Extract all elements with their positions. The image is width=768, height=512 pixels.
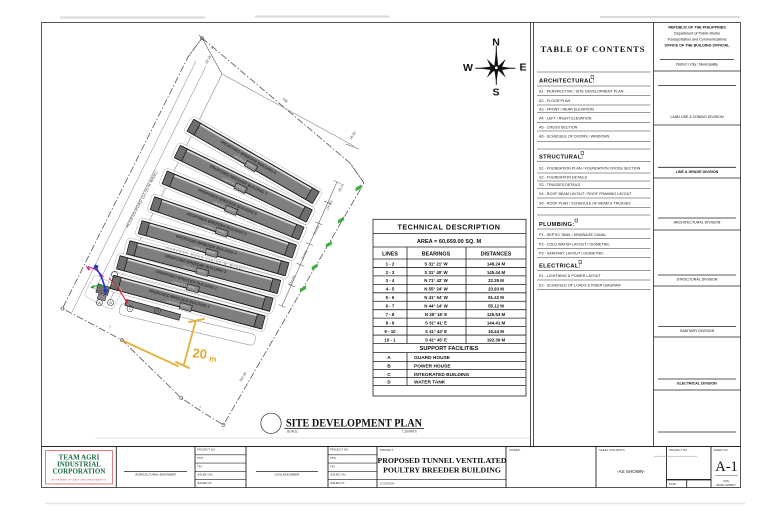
svg-text:TIN:: TIN:: [197, 464, 203, 468]
svg-text:S3 - TRUSSES DETAILS: S3 - TRUSSES DETAILS: [539, 183, 581, 187]
svg-text:TECHNICAL DESCRIPTION: TECHNICAL DESCRIPTION: [397, 223, 500, 232]
svg-text:ISSUED AT:: ISSUED AT:: [197, 481, 212, 485]
svg-text:N 44° 14' W: N 44° 14' W: [424, 304, 448, 309]
svg-text:E2 - SCHEDULE OF LOADS & RISER: E2 - SCHEDULE OF LOADS & RISER DIAGRAM: [539, 284, 621, 288]
svg-text:C: C: [387, 372, 391, 378]
svg-text:N 41° 54' W: N 41° 54' W: [424, 295, 448, 300]
svg-text:SITE DEVELOPMENT PLAN: SITE DEVELOPMENT PLAN: [286, 416, 422, 430]
svg-text:3 - 4: 3 - 4: [386, 278, 395, 283]
svg-text:E: E: [519, 62, 526, 74]
svg-text:CIVIL ENGINEER: CIVIL ENGINEER: [275, 473, 300, 477]
svg-text:SITE: SITE: [723, 479, 729, 483]
svg-text:B: B: [387, 364, 391, 370]
svg-text:A6 - SCHEDULE OF DOORS / WINDO: A6 - SCHEDULE OF DOORS / WINDOWS: [539, 135, 610, 139]
svg-text:55.12 M: 55.12 M: [488, 304, 504, 309]
svg-text:LOCATION:: LOCATION:: [380, 482, 395, 486]
svg-text:148.24 M: 148.24 M: [487, 261, 506, 266]
svg-text:2 - 3: 2 - 3: [386, 270, 395, 275]
svg-text:STRUCTURAL:: STRUCTURAL:: [539, 155, 584, 161]
svg-text:8 - 9: 8 - 9: [386, 320, 395, 325]
svg-text:LINE & GRADE DIVISION: LINE & GRADE DIVISION: [676, 170, 719, 174]
svg-text:A5 - CROSS SECTION: A5 - CROSS SECTION: [539, 126, 578, 130]
svg-text:LAND USE & ZONING DIVISION: LAND USE & ZONING DIVISION: [670, 115, 724, 119]
svg-text:192.39 M: 192.39 M: [487, 337, 506, 342]
svg-text:20: 20: [192, 345, 208, 362]
svg-text:m: m: [209, 354, 217, 364]
svg-text:7 - 8: 7 - 8: [386, 312, 395, 317]
svg-text:6 - 7: 6 - 7: [386, 304, 395, 309]
svg-text:W: W: [463, 62, 473, 74]
svg-text:PROPOSED TUNNEL VENTILATED: PROPOSED TUNNEL VENTILATED: [377, 456, 506, 465]
svg-text:S 31° 21' W: S 31° 21' W: [424, 261, 448, 266]
svg-text:Department of Public Works: Department of Public Works: [674, 32, 720, 36]
svg-text:9 - 10: 9 - 10: [384, 329, 396, 334]
svg-text:E1 - LIGHTNING & POWER LAYOUT: E1 - LIGHTNING & POWER LAYOUT: [539, 274, 602, 278]
svg-text:125.53 M: 125.53 M: [487, 312, 506, 317]
svg-text:LINES: LINES: [382, 252, 398, 258]
svg-text:POULTRY BREEDER BUILDING: POULTRY BREEDER BUILDING: [383, 466, 501, 475]
svg-text:AGRICULTURAL ENGINEER: AGRICULTURAL ENGINEER: [135, 473, 176, 477]
svg-text:S5 - ROOF PLAN / SCHEDULE OF B: S5 - ROOF PLAN / SCHEDULE OF BEAM & TRUS…: [539, 202, 631, 206]
svg-text:DISTANCES: DISTANCES: [481, 252, 512, 258]
svg-text:91.42 M: 91.42 M: [488, 295, 504, 300]
svg-text:PROJECT NO.:: PROJECT NO.:: [669, 448, 689, 452]
svg-text:S4 - ROOF BEAM LAYOUT / ROOF F: S4 - ROOF BEAM LAYOUT / ROOF FRAMING LAY…: [539, 192, 632, 196]
svg-text:District / City / Municipality: District / City / Municipality: [676, 63, 718, 67]
svg-text:ISSUED AT:: ISSUED AT:: [330, 481, 345, 485]
svg-text:AREA = 60,659.00 SQ. M: AREA = 60,659.00 SQ. M: [417, 239, 482, 245]
svg-text:SHEET NO.: SHEET NO.: [714, 448, 729, 452]
svg-text:PROJECT:: PROJECT:: [380, 448, 394, 452]
svg-text:10 - 1: 10 - 1: [384, 337, 396, 342]
svg-text:N 26° 16' E: N 26° 16' E: [425, 312, 447, 317]
svg-text:N: N: [492, 37, 500, 49]
svg-text:S1 - FOUNDATION PLAN / FOUNDAT: S1 - FOUNDATION PLAN / FOUNDATION CROSS …: [539, 167, 641, 171]
svg-text:OWNER:: OWNER:: [509, 448, 521, 452]
svg-text:SUPPORT FACILITIES: SUPPORT FACILITIES: [420, 346, 479, 352]
svg-text:AT THE HEART OF QUALITY AND GR: AT THE HEART OF QUALITY AND GREAT HARVES…: [52, 478, 107, 481]
svg-text:ELECTRICAL DIVISION: ELECTRICAL DIVISION: [677, 382, 717, 386]
svg-text:PROJECT NO:: PROJECT NO:: [197, 448, 216, 452]
svg-text:WATER TANK: WATER TANK: [414, 380, 446, 386]
svg-text:OFFICE OF THE BUILDING OFFICIA: OFFICE OF THE BUILDING OFFICIAL: [665, 44, 731, 48]
svg-text:GUARD HOUSE: GUARD HOUSE: [414, 355, 451, 361]
svg-text:15.44 M: 15.44 M: [488, 329, 504, 334]
svg-text:144.41 M: 144.41 M: [487, 320, 506, 325]
svg-text:A3 - FRONT / REAR ELEVATION: A3 - FRONT / REAR ELEVATION: [539, 108, 594, 112]
svg-text:S 41° 45' E: S 41° 45' E: [425, 337, 447, 342]
svg-text:ARCHITECTURAL DIVISION: ARCHITECTURAL DIVISION: [674, 221, 721, 225]
svg-text:P3 - SANITARY LAYOUT / ISOMETR: P3 - SANITARY LAYOUT / ISOMETRIC: [539, 252, 604, 256]
svg-text:-AS SHOWN-: -AS SHOWN-: [617, 469, 646, 474]
svg-text:Transportation and Communicati: Transportation and Communications: [667, 38, 726, 42]
svg-text:22.35 M: 22.35 M: [488, 278, 504, 283]
svg-text:A2 - FLOOR PLAN: A2 - FLOOR PLAN: [539, 99, 570, 103]
svg-text:SANITARY DIVISION: SANITARY DIVISION: [680, 329, 715, 333]
svg-text:DATE:: DATE:: [669, 482, 677, 486]
svg-text:A4 - LEFT / RIGHT ELEVATION: A4 - LEFT / RIGHT ELEVATION: [539, 117, 592, 121]
svg-text:POWER HOUSE: POWER HOUSE: [414, 364, 451, 370]
svg-text:S: S: [492, 87, 499, 99]
svg-text:STRUCTURAL DIVISION: STRUCTURAL DIVISION: [677, 278, 718, 282]
svg-text:ARCHITECTURAL:: ARCHITECTURAL:: [539, 79, 595, 85]
svg-text:23.93 M: 23.93 M: [488, 287, 504, 292]
svg-text:ISSUED ON:: ISSUED ON:: [197, 473, 213, 477]
svg-text:A1 - PERSPECTIVE / SITE DEVELO: A1 - PERSPECTIVE / SITE DEVELOPMENT PLAN: [539, 90, 624, 94]
svg-text:SHEET CONTENTS:: SHEET CONTENTS:: [599, 448, 625, 452]
svg-text:A: A: [387, 355, 391, 361]
svg-text:TABLE OF CONTENTS: TABLE OF CONTENTS: [541, 45, 646, 54]
svg-text:N 55° 24' W: N 55° 24' W: [424, 287, 448, 292]
svg-text:D: D: [387, 380, 391, 386]
svg-text:REPUBLIC OF THE PHILIPPINES: REPUBLIC OF THE PHILIPPINES: [668, 26, 726, 30]
svg-text:SCALE:: SCALE:: [287, 430, 298, 434]
svg-text:INTEGRATED BUILDING: INTEGRATED BUILDING: [414, 372, 470, 378]
svg-text:1:100MTS: 1:100MTS: [402, 430, 417, 434]
svg-text:N 71° 42' W: N 71° 42' W: [424, 278, 448, 283]
svg-text:PTR:: PTR:: [197, 456, 204, 460]
svg-text:4 - 5: 4 - 5: [386, 287, 395, 292]
svg-text:145.44 M: 145.44 M: [487, 270, 506, 275]
svg-text:PROJECT NO:: PROJECT NO:: [330, 448, 349, 452]
svg-text:1 - 2: 1 - 2: [386, 261, 395, 266]
svg-text:DEVELOPMENT: DEVELOPMENT: [716, 483, 736, 487]
svg-text:ELECTRICAL:: ELECTRICAL:: [539, 264, 581, 270]
svg-text:A-1: A-1: [715, 459, 738, 475]
svg-text:S 31° 40' W: S 31° 40' W: [424, 270, 448, 275]
svg-text:PLUMBING:: PLUMBING:: [539, 222, 575, 228]
svg-text:P2 - COLD WATER LAYOUT / ISOME: P2 - COLD WATER LAYOUT / ISOMETRIC: [539, 243, 610, 247]
svg-text:S 41° 44' E: S 41° 44' E: [425, 329, 447, 334]
svg-text:P1 - SEPTIC TANK / DRAINAGE CA: P1 - SEPTIC TANK / DRAINAGE CANAL: [539, 233, 606, 237]
svg-text:5 - 6: 5 - 6: [386, 295, 395, 300]
svg-text:S 31° 41' E: S 31° 41' E: [425, 320, 447, 325]
svg-text:TIN:: TIN:: [330, 464, 336, 468]
svg-text:BEARINGS: BEARINGS: [422, 252, 451, 258]
svg-text:CORPORATION: CORPORATION: [53, 468, 106, 476]
svg-text:ISSUED ON:: ISSUED ON:: [330, 473, 346, 477]
svg-text:S2 - FOUNDATION DETAILS: S2 - FOUNDATION DETAILS: [539, 176, 588, 180]
svg-text:PTR:: PTR:: [330, 456, 337, 460]
